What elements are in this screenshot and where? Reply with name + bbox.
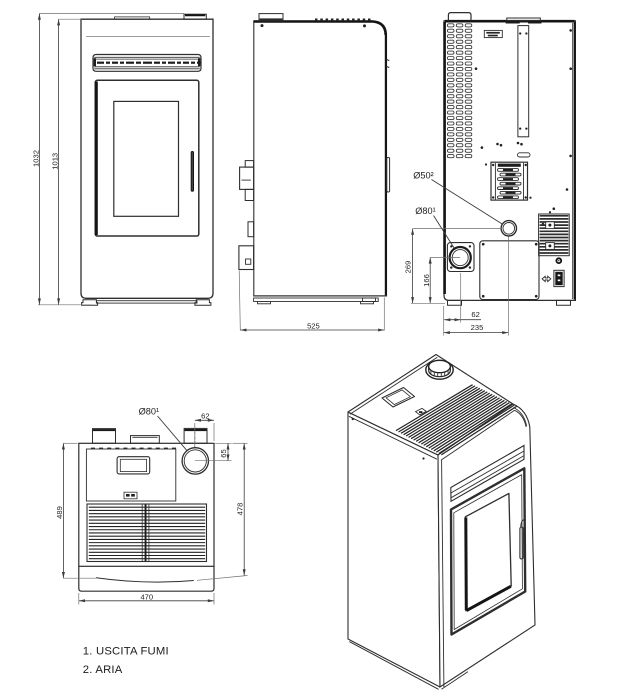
svg-text:235: 235 — [471, 323, 484, 332]
svg-text:Ø80¹: Ø80¹ — [415, 206, 435, 216]
svg-text:62: 62 — [471, 310, 479, 319]
svg-text:Ø80¹: Ø80¹ — [139, 406, 159, 416]
svg-text:Ø50²: Ø50² — [413, 170, 433, 180]
svg-text:525: 525 — [307, 322, 320, 331]
svg-text:269: 269 — [404, 261, 413, 274]
svg-text:166: 166 — [422, 274, 431, 287]
svg-text:489: 489 — [55, 506, 64, 519]
svg-text:62: 62 — [201, 411, 209, 420]
svg-text:1. USCITA FUMI: 1. USCITA FUMI — [83, 646, 169, 658]
svg-text:2. ARIA: 2. ARIA — [83, 664, 123, 676]
svg-text:478: 478 — [236, 503, 245, 516]
svg-text:1013: 1013 — [51, 153, 60, 170]
svg-text:470: 470 — [140, 593, 153, 602]
svg-text:65: 65 — [219, 449, 228, 457]
svg-text:1032: 1032 — [31, 150, 40, 167]
